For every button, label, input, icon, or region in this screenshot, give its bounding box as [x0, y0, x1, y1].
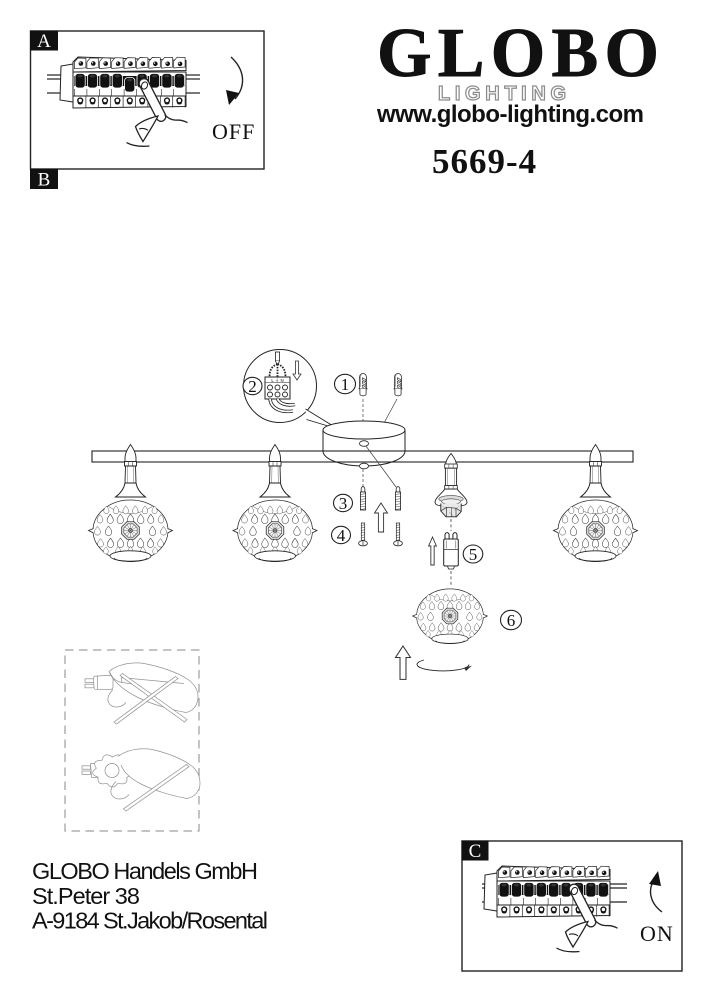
svg-text:GLOBO: GLOBO	[377, 15, 664, 92]
svg-text:A: A	[37, 31, 51, 52]
svg-text:A-9184 St.Jakob/Rosental: A-9184 St.Jakob/Rosental	[32, 908, 268, 934]
svg-text:OFF: OFF	[212, 119, 255, 144]
svg-text:St.Peter 38: St.Peter 38	[32, 883, 140, 909]
svg-text:B: B	[38, 170, 51, 191]
svg-text:C: C	[469, 841, 482, 862]
svg-text:3: 3	[339, 494, 348, 513]
svg-text:1: 1	[341, 375, 350, 394]
svg-text:5: 5	[469, 545, 478, 564]
svg-text:GLOBO Handels GmbH: GLOBO Handels GmbH	[32, 858, 258, 884]
svg-text:5669-4: 5669-4	[432, 142, 537, 181]
svg-text:6: 6	[507, 611, 516, 630]
svg-text:L ⏚ N: L ⏚ N	[271, 378, 283, 383]
svg-text:ON: ON	[640, 921, 674, 946]
svg-text:2: 2	[248, 377, 257, 396]
svg-text:www.globo-lighting.com: www.globo-lighting.com	[376, 101, 644, 128]
svg-text:4: 4	[337, 526, 346, 545]
